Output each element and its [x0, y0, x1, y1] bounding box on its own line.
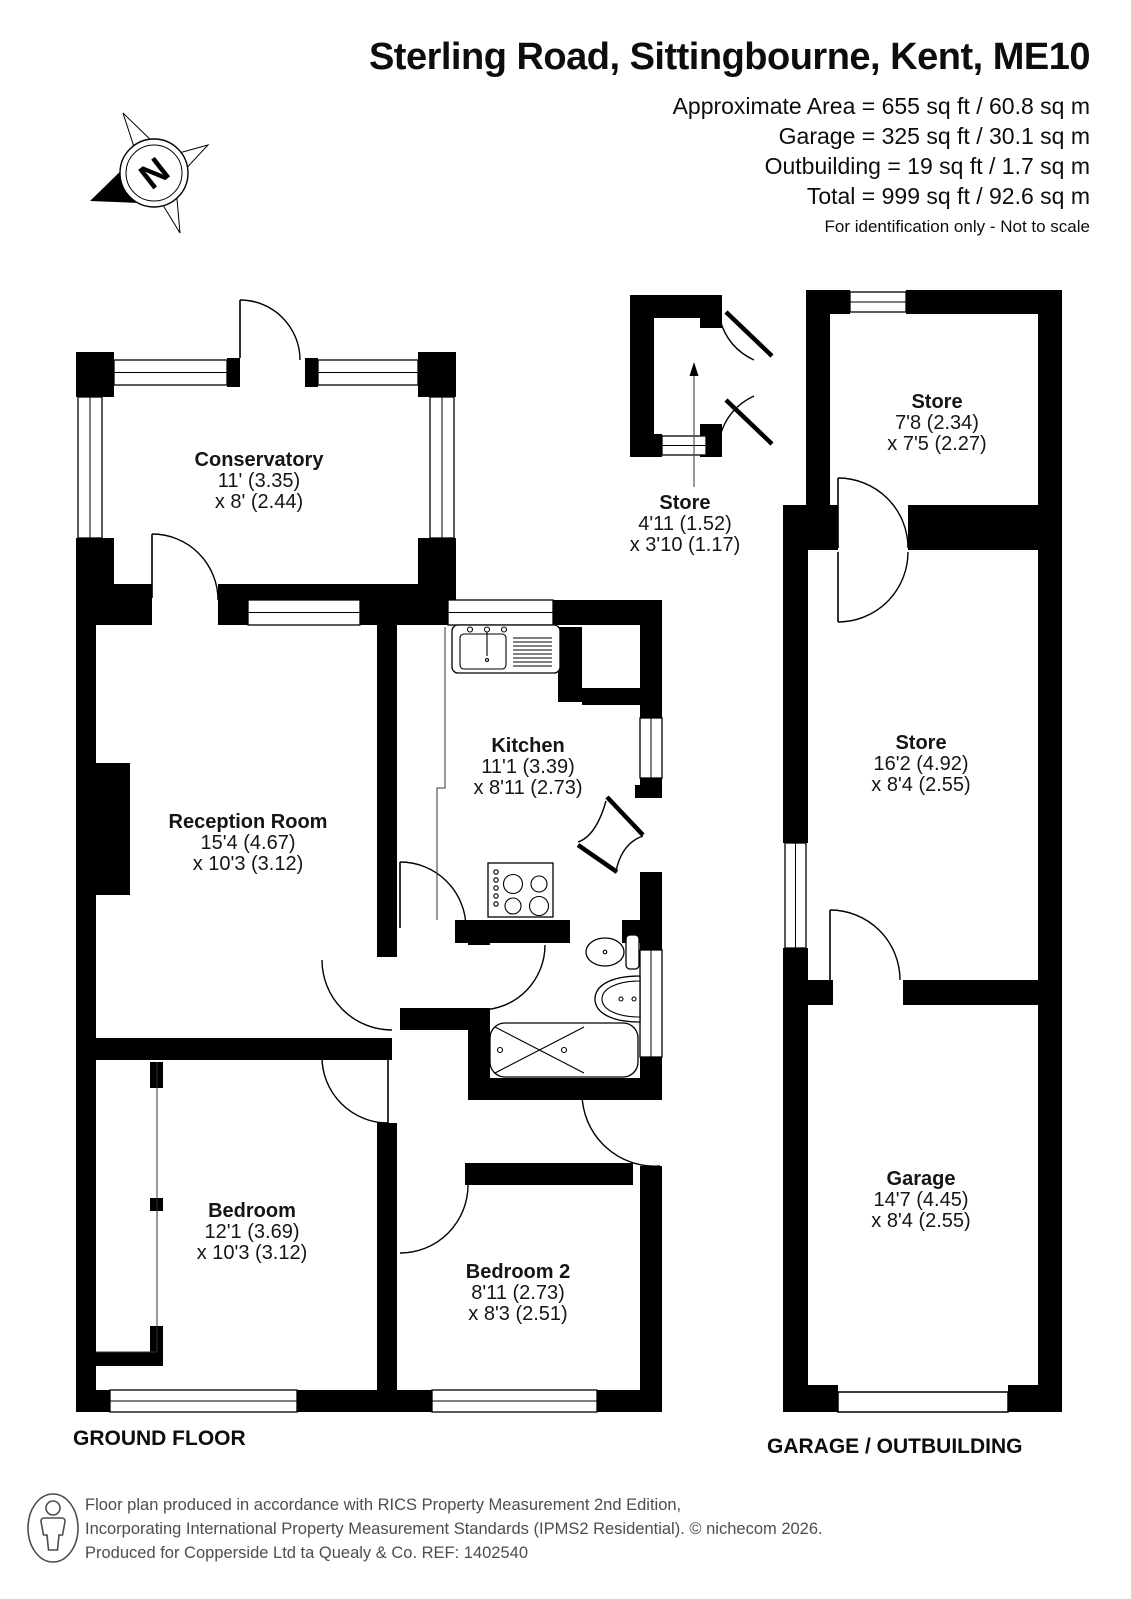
garage-outbuilding-label: GARAGE / OUTBUILDING: [767, 1435, 1023, 1459]
window-kitchen-top: [448, 600, 553, 625]
room-label-store-long: Store 16'2 (4.92) x 8'4 (2.55): [871, 733, 970, 796]
scale-note: For identification only - Not to scale: [369, 217, 1090, 237]
window-store-long-left: [785, 843, 806, 948]
footer-person-icon: [28, 1494, 78, 1562]
window-bedroom-bottom: [110, 1390, 297, 1412]
footer-line-1: Floor plan produced in accordance with R…: [85, 1493, 823, 1517]
room-label-kitchen: Kitchen 11'1 (3.39) x 8'11 (2.73): [473, 736, 582, 799]
window-conservatory-left: [78, 397, 102, 538]
window-conservatory-top-left: [114, 360, 227, 385]
bedroom-wardrobe: [96, 1062, 157, 1352]
ground-floor-walls: [76, 352, 662, 1412]
room-label-conservatory: Conservatory 11' (3.35) x 8' (2.44): [195, 450, 324, 513]
store-small-arrow: [690, 362, 699, 487]
bathtub: [490, 1023, 638, 1077]
window-kitchen-right: [640, 718, 662, 778]
ground-floor-label: GROUND FLOOR: [73, 1427, 246, 1451]
window-store-top: [850, 292, 906, 312]
room-label-bedroom2: Bedroom 2 8'11 (2.73) x 8'3 (2.51): [466, 1262, 570, 1325]
outbuilding-walls: [630, 290, 1062, 1412]
header: Sterling Road, Sittingbourne, Kent, ME10…: [369, 36, 1090, 237]
room-label-bedroom: Bedroom 12'1 (3.69) x 10'3 (3.12): [197, 1201, 308, 1264]
area-line-total: Total = 999 sq ft / 92.6 sq m: [369, 181, 1090, 211]
area-line-outbuilding: Outbuilding = 19 sq ft / 1.7 sq m: [369, 151, 1090, 181]
floorplan-drawing: N: [0, 0, 1131, 1599]
page-title: Sterling Road, Sittingbourne, Kent, ME10: [369, 36, 1090, 79]
area-summary: Approximate Area = 655 sq ft / 60.8 sq m…: [369, 91, 1090, 211]
footer-line-2: Incorporating International Property Mea…: [85, 1517, 823, 1541]
garage-door: [838, 1392, 1008, 1412]
area-line-approximate: Approximate Area = 655 sq ft / 60.8 sq m: [369, 91, 1090, 121]
window-store-small-bottom: [662, 436, 706, 455]
room-label-reception: Reception Room 15'4 (4.67) x 10'3 (3.12): [169, 812, 328, 875]
window-conservatory-top-right: [318, 360, 418, 385]
kitchen-sink: [452, 625, 560, 673]
area-line-garage: Garage = 325 sq ft / 30.1 sq m: [369, 121, 1090, 151]
room-label-garage: Garage 14'7 (4.45) x 8'4 (2.55): [871, 1169, 970, 1232]
kitchen-hob: [488, 863, 553, 917]
compass-icon: N: [90, 113, 208, 233]
floorplan-page: N: [0, 0, 1131, 1599]
room-label-store-top: Store 7'8 (2.34) x 7'5 (2.27): [887, 392, 986, 455]
window-bedroom2-bottom: [432, 1390, 597, 1412]
basin: [595, 976, 640, 1022]
toilet: [586, 935, 639, 969]
window-bathroom-right: [640, 950, 662, 1057]
window-reception-top: [248, 600, 360, 625]
room-label-store-small: Store 4'11 (1.52) x 3'10 (1.17): [630, 493, 741, 556]
footer-disclaimer: Floor plan produced in accordance with R…: [85, 1493, 823, 1565]
window-conservatory-right: [430, 397, 454, 538]
footer-line-3: Produced for Copperside Ltd ta Quealy & …: [85, 1541, 823, 1565]
